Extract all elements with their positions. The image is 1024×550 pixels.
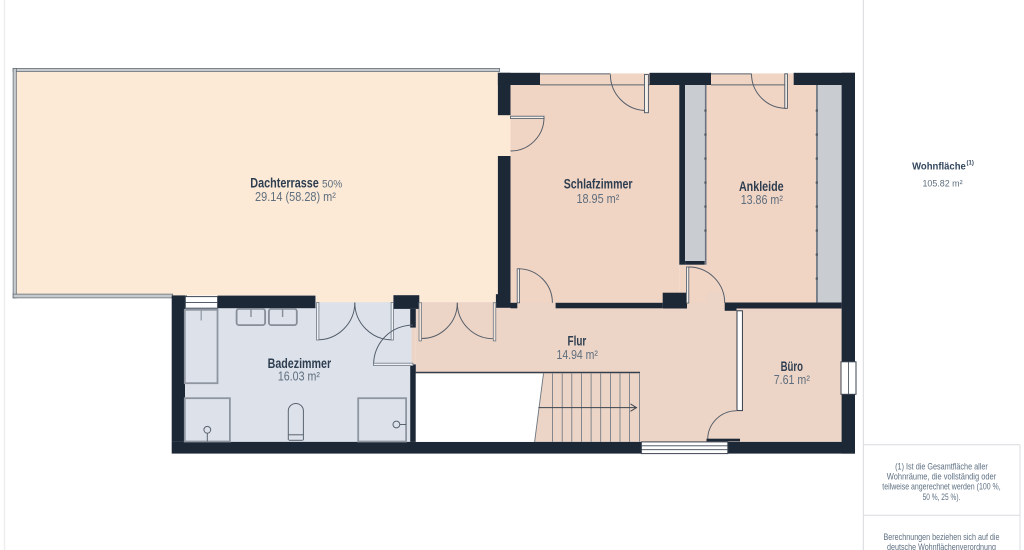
svg-text:Berechnungen beziehen sich auf: Berechnungen beziehen sich auf die	[884, 532, 1000, 542]
svg-text:7.61 m²: 7.61 m²	[774, 373, 810, 387]
svg-text:Schlafzimmer: Schlafzimmer	[564, 177, 633, 192]
svg-text:(1): (1)	[967, 161, 974, 167]
svg-text:Wohnfläche: Wohnfläche	[912, 161, 966, 172]
svg-text:Wohnräume, die vollständig ode: Wohnräume, die vollständig oder	[887, 472, 996, 482]
svg-text:Dachterrasse: Dachterrasse	[250, 175, 319, 190]
svg-text:50 %, 25 %).: 50 %, 25 %).	[923, 492, 961, 502]
svg-text:16.03 m²: 16.03 m²	[278, 370, 320, 384]
svg-text:29.14 (58.28) m²: 29.14 (58.28) m²	[255, 190, 336, 204]
svg-text:Büro: Büro	[781, 359, 803, 374]
svg-text:teilweise angerechnet werden (: teilweise angerechnet werden (100 %,	[882, 482, 1000, 492]
svg-text:18.95 m²: 18.95 m²	[576, 192, 619, 206]
svg-text:(1) Ist die Gesamtfläche aller: (1) Ist die Gesamtfläche aller	[895, 461, 988, 471]
svg-text:deutsche Wohnflächenverordnung: deutsche Wohnflächenverordnung	[887, 542, 996, 550]
svg-text:14.94 m²: 14.94 m²	[557, 348, 598, 362]
svg-text:105.82 m²: 105.82 m²	[922, 178, 963, 189]
svg-text:13.86 m²: 13.86 m²	[741, 193, 783, 207]
svg-text:50%: 50%	[322, 178, 342, 190]
svg-text:Ankleide: Ankleide	[739, 179, 784, 194]
svg-text:Flur: Flur	[568, 334, 587, 349]
